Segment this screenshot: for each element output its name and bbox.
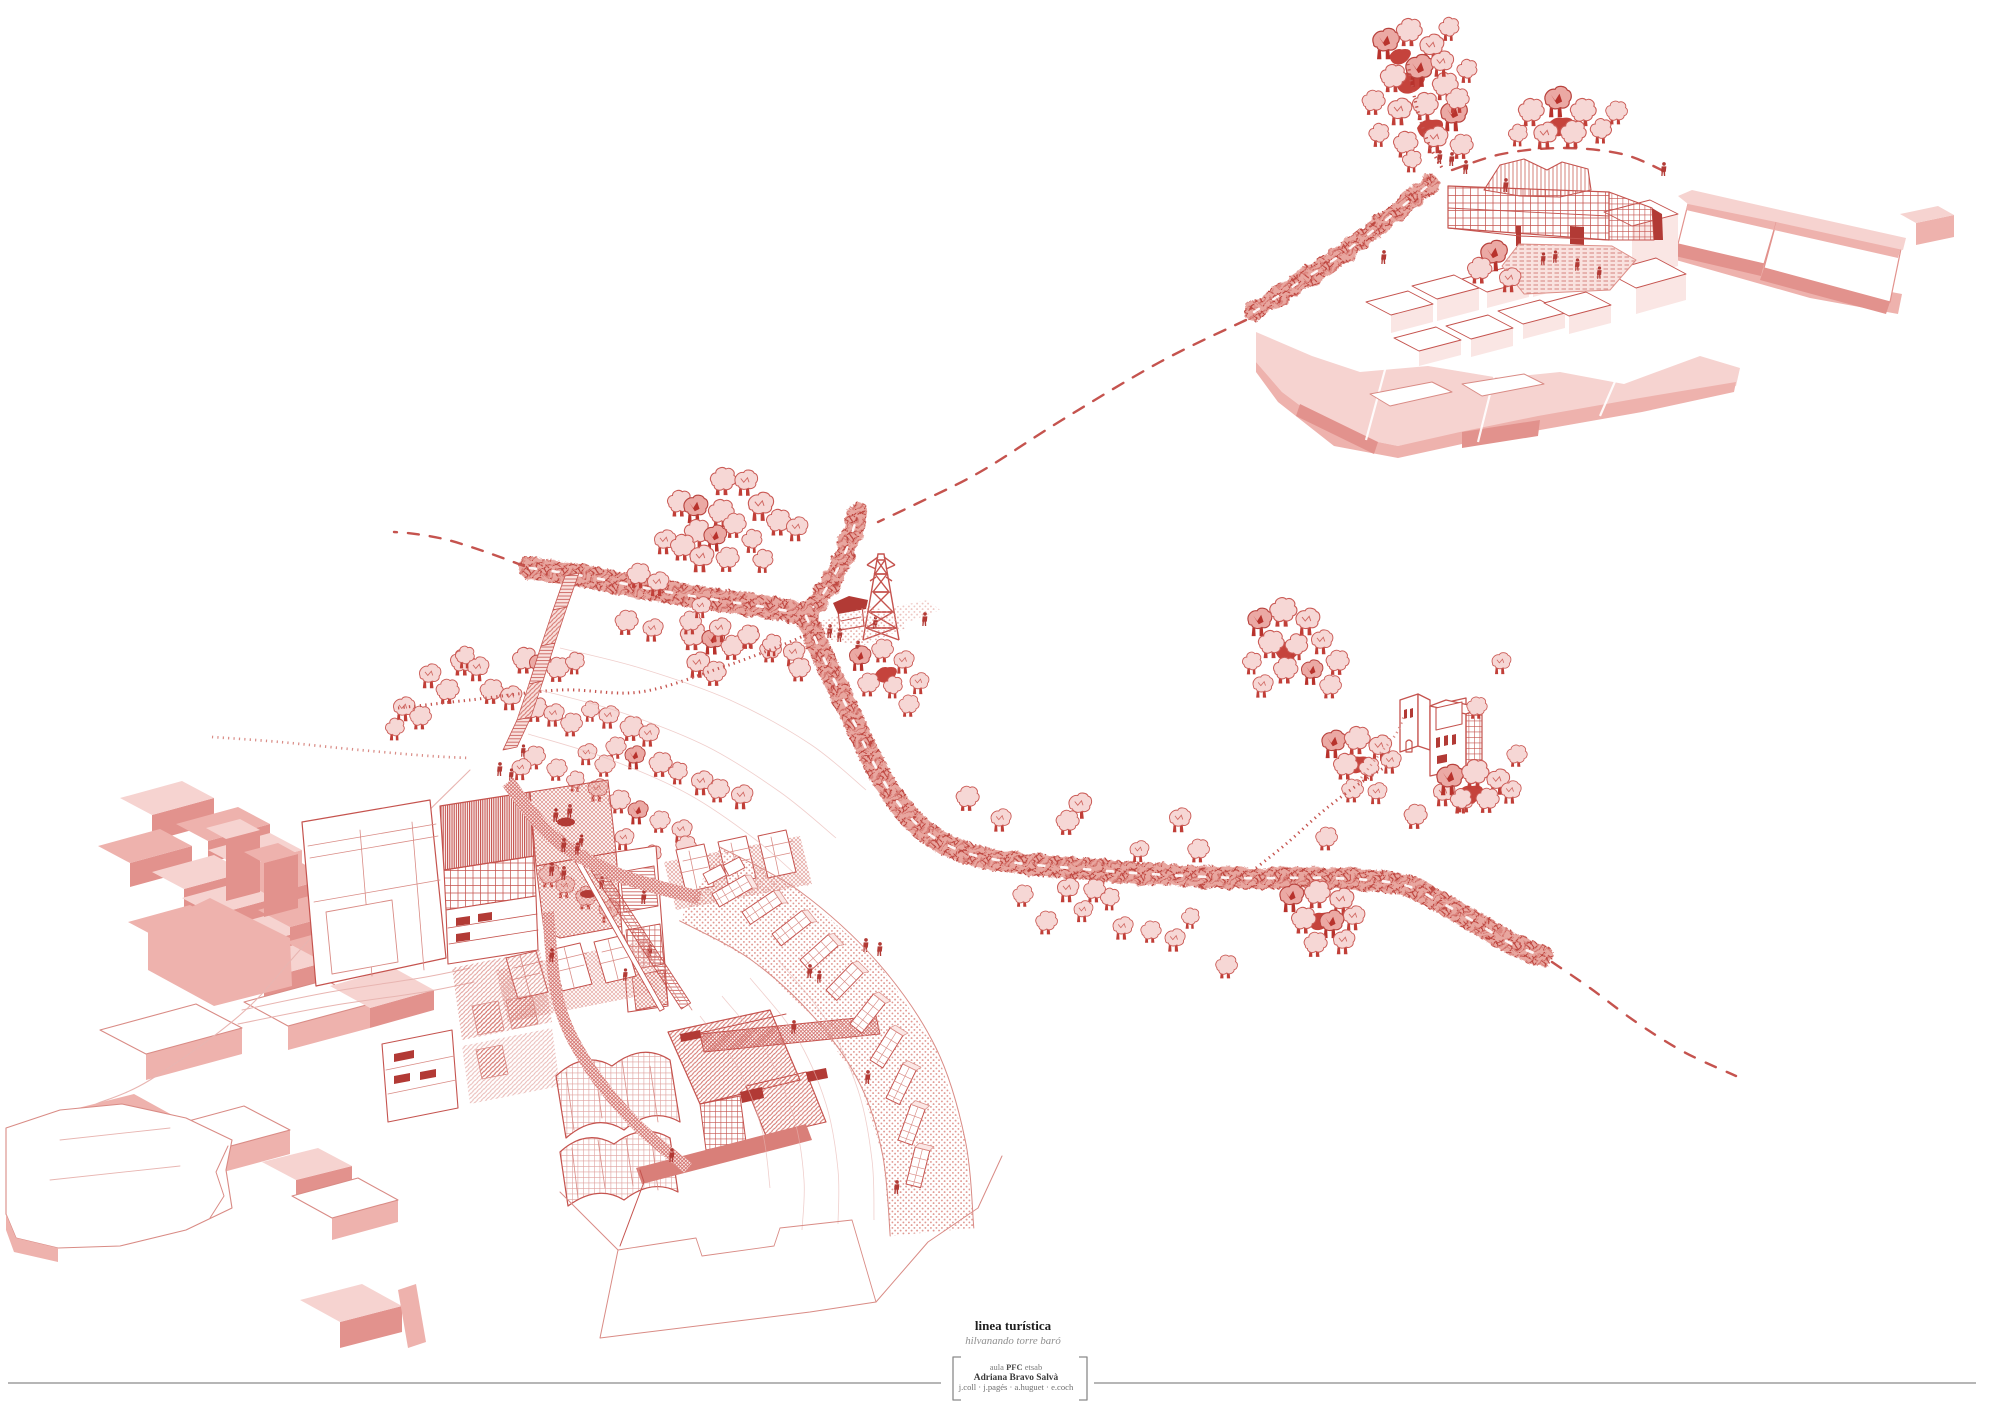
svg-text:linea turística: linea turística bbox=[975, 1318, 1052, 1333]
svg-text:aula PFC etsab: aula PFC etsab bbox=[990, 1362, 1042, 1372]
svg-text:j.coll · j.pagés · a.huguet ·: j.coll · j.pagés · a.huguet · e.coch bbox=[958, 1382, 1074, 1392]
svg-text:hilvanando torre baró: hilvanando torre baró bbox=[965, 1335, 1061, 1347]
